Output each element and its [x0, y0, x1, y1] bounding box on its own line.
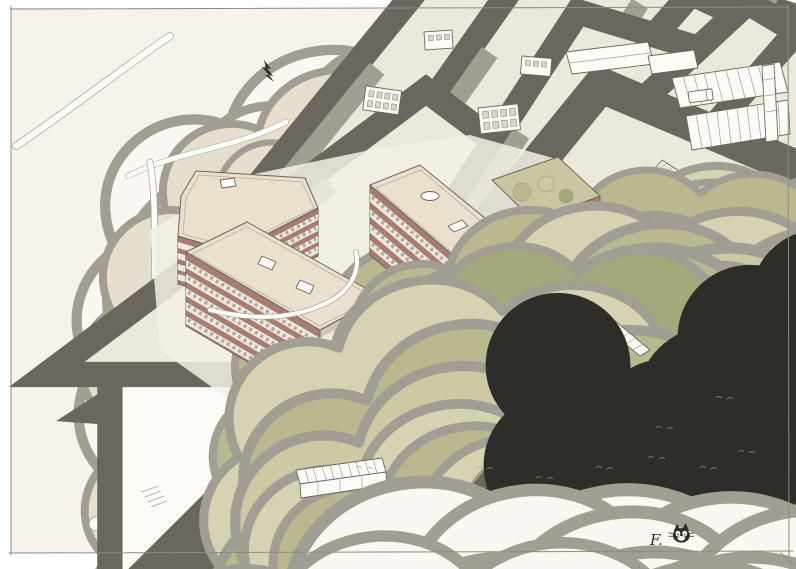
signature-text: F. — [649, 531, 663, 549]
illustration-canvas: F. — [0, 0, 796, 569]
rooftop-vent — [220, 178, 236, 188]
aerial-axonometric-site-drawing: F. — [0, 0, 796, 569]
rooftop-cylinder — [421, 192, 439, 201]
